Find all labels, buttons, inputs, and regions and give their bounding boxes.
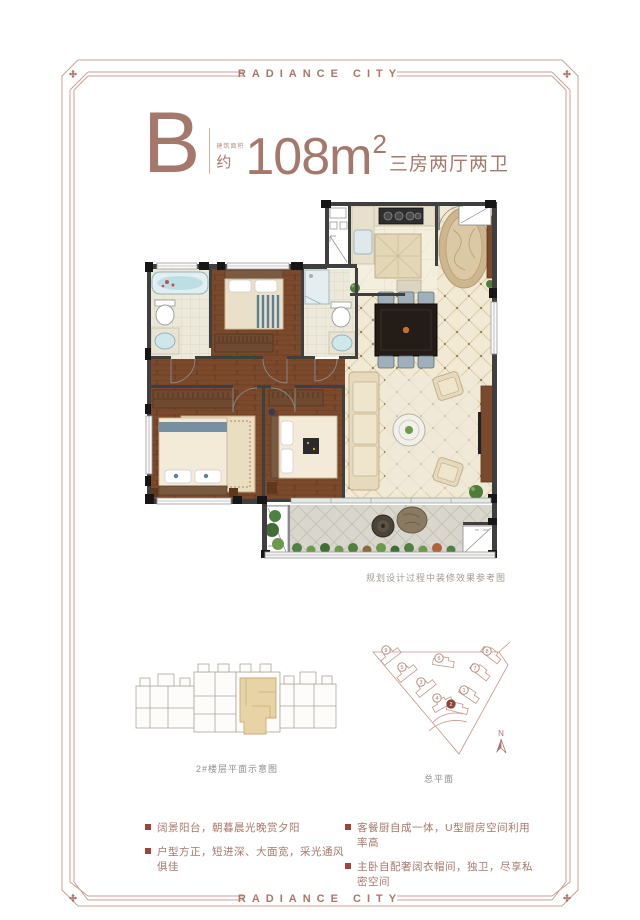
building-badge: 1 [460, 686, 468, 694]
tv-cabinet [481, 386, 493, 482]
pillow [281, 449, 293, 473]
plant-icon [469, 485, 483, 499]
north-arrow-icon: N [496, 729, 506, 753]
living-room-furniture [349, 371, 493, 499]
chair [398, 356, 414, 368]
bullet-square-icon [345, 824, 351, 830]
feature-text: 户型方正，短进深、大面宽，采光通风俱佳 [157, 844, 345, 874]
unit-title: B 建筑面积 约 108 m 2 三房两厅两卫 [143, 108, 509, 179]
nightstand [267, 482, 277, 494]
building-badge: 6 [435, 654, 443, 662]
svg-text:7: 7 [473, 666, 476, 672]
brand-header: RADIANCE CITY [0, 68, 640, 80]
pillow [255, 280, 277, 292]
bullet-square-icon [145, 848, 151, 854]
siteplan-caption: 总平面 [363, 772, 515, 785]
svg-text:1: 1 [462, 688, 465, 694]
corridor-floor [149, 359, 345, 388]
svg-text:2: 2 [449, 702, 452, 708]
feature-text: 客餐厨自成一体，U型厨房空间利用率高 [357, 820, 535, 850]
feature-text: 阔景阳台，朝暮晨光晚赏夕阳 [157, 820, 300, 835]
area-exponent: 2 [372, 134, 386, 155]
utility-platform [327, 204, 350, 266]
schematic-caption: 2#楼层平面示意图 [128, 762, 346, 775]
building-badge: 3 [417, 678, 425, 686]
svg-text:3: 3 [419, 680, 422, 686]
svg-text:N: N [498, 729, 504, 738]
sink [155, 333, 175, 349]
wardrobe [269, 390, 323, 406]
sliding-door [291, 498, 491, 503]
kitchen-sink [354, 230, 372, 254]
svg-text:5: 5 [400, 665, 403, 671]
lamp [269, 409, 276, 416]
chair [418, 356, 434, 368]
feature-item: 户型方正，短进深、大面宽，采光通风俱佳 [145, 844, 345, 874]
title-divider [209, 128, 210, 174]
area-unit: m [329, 137, 372, 179]
svg-text:4: 4 [435, 696, 438, 702]
floor-plan [145, 200, 505, 566]
unit-letter: B [143, 108, 200, 179]
toilet [156, 305, 174, 325]
sink [332, 335, 352, 351]
svg-text:6: 6 [437, 656, 440, 662]
toilet [332, 307, 350, 327]
feature-list: 阔景阳台，朝暮晨光晚赏夕阳 户型方正，短进深、大面宽，采光通风俱佳 客餐厨自成一… [145, 820, 535, 898]
tv [478, 412, 481, 454]
feature-item: 阔景阳台，朝暮晨光晚赏夕阳 [145, 820, 345, 835]
area-label: 建筑面积 [216, 141, 244, 150]
bed-headboard [271, 416, 279, 478]
chair [418, 292, 434, 304]
site-plan: 9 5 3 6 4 2 1 7 8 N 总平面 [363, 636, 515, 785]
bed-headboard [159, 486, 227, 495]
building-badge-highlighted: 2 [447, 700, 455, 708]
site-plan-drawing: 9 5 3 6 4 2 1 7 8 N [363, 636, 515, 762]
floor-schematic-drawing [128, 648, 346, 752]
feature-item: 主卧自配奢阔衣帽间，独卫，尽享私密空间 [345, 859, 535, 889]
shower [305, 270, 329, 304]
dining-set [375, 292, 437, 368]
svg-text:8: 8 [485, 649, 488, 655]
building-badge: 9 [382, 646, 390, 654]
nightstand [229, 488, 238, 497]
feature-text: 主卧自配奢阔衣帽间，独卫，尽享私密空间 [357, 859, 535, 889]
bullet-square-icon [145, 824, 151, 830]
area-number: 108 [245, 137, 329, 179]
plant-icon [405, 426, 413, 434]
svg-text:9: 9 [384, 648, 387, 654]
brochure-page: RADIANCE CITY RADIANCE CITY B 建筑面积 约 108… [0, 0, 640, 920]
bed-headboard [225, 270, 283, 279]
pillow [229, 280, 251, 292]
bullet-square-icon [345, 863, 351, 869]
pillow [281, 421, 293, 445]
approx-label: 约 [216, 151, 231, 172]
floorplan-caption: 规划设计过程中装修效果参考图 [366, 571, 506, 584]
floor-schematic: 2#楼层平面示意图 [128, 648, 346, 775]
bedroom2-furniture [215, 270, 283, 352]
feature-item: 客餐厨自成一体，U型厨房空间利用率高 [345, 820, 535, 850]
building-badge: 5 [398, 663, 406, 671]
bed-throw [303, 438, 319, 454]
building-badge: 8 [483, 647, 491, 655]
building-badge: 4 [433, 694, 441, 702]
chair [378, 356, 394, 368]
entry-foyer [439, 205, 495, 288]
bed-runner [159, 422, 227, 432]
room-description: 三房两厅两卫 [389, 149, 509, 176]
building-badge: 7 [471, 664, 479, 672]
stone-rock [397, 507, 427, 533]
